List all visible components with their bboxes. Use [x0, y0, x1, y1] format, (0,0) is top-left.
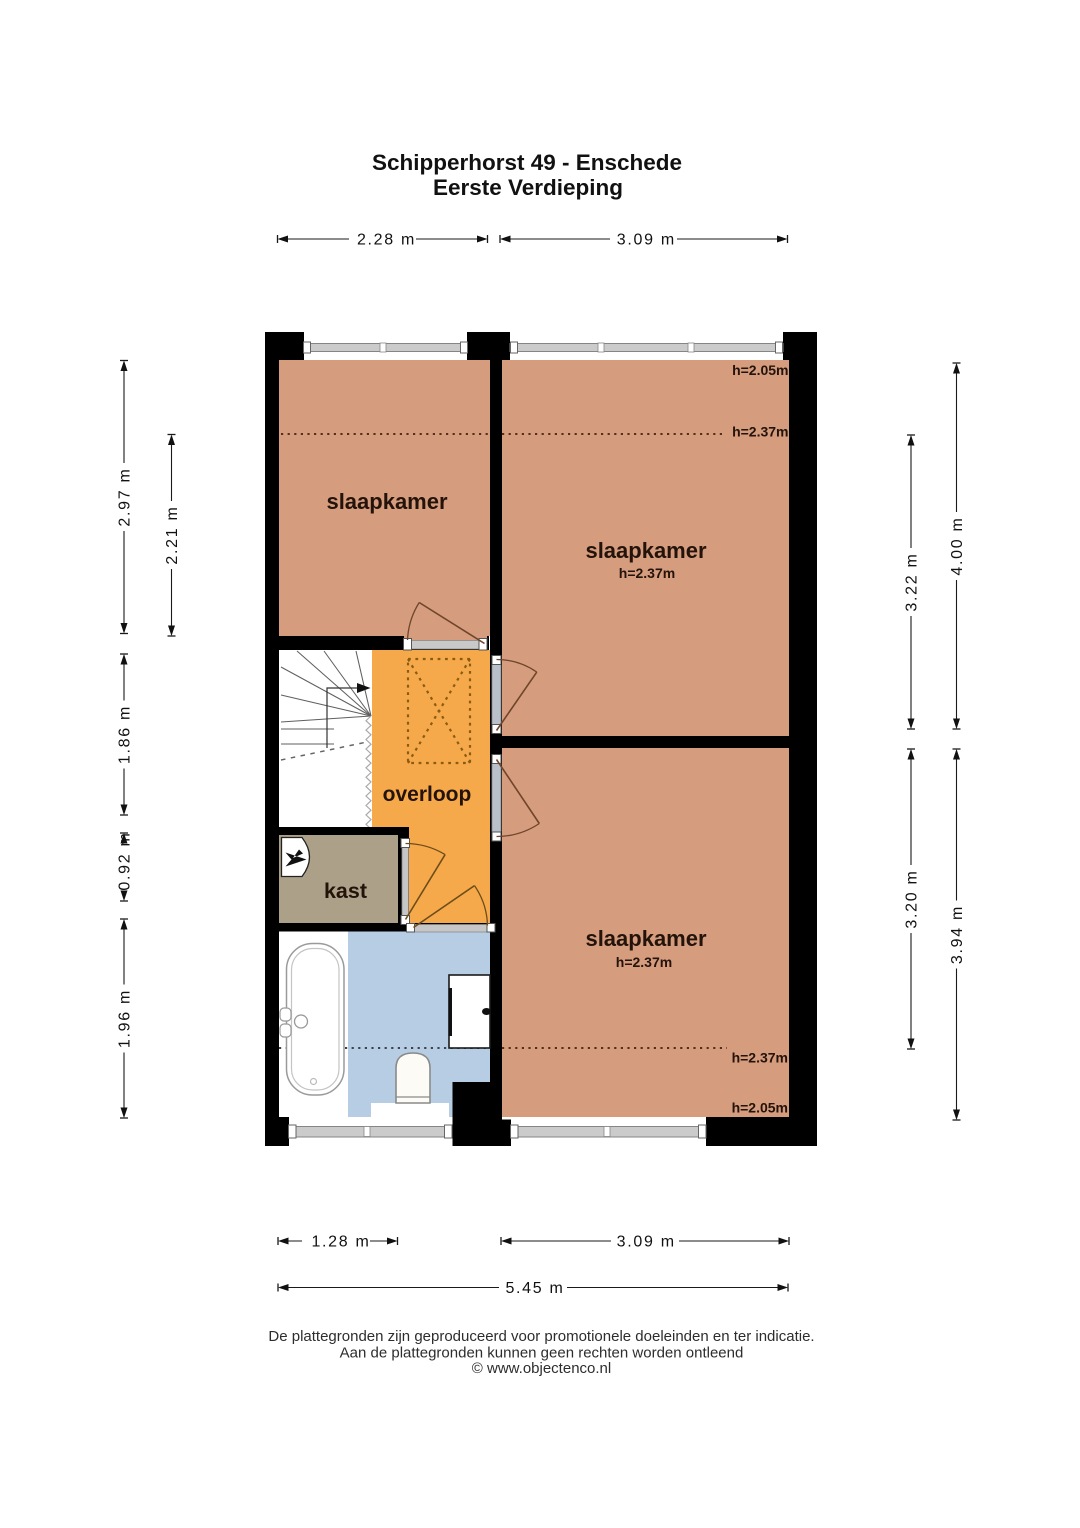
svg-text:2.28 m: 2.28 m	[357, 232, 416, 249]
svg-text:1.96 m: 1.96 m	[117, 989, 134, 1048]
svg-text:1.28 m: 1.28 m	[311, 1234, 370, 1251]
svg-text:overloop: overloop	[383, 783, 472, 806]
svg-text:0.92 m: 0.92 m	[117, 831, 134, 890]
svg-text:© www.objectenco.nl: © www.objectenco.nl	[472, 1360, 611, 1377]
svg-text:Aan de plattegronden kunnen ge: Aan de plattegronden kunnen geen rechten…	[340, 1345, 744, 1362]
svg-text:3.09 m: 3.09 m	[617, 1234, 676, 1251]
svg-text:h=2.37m: h=2.37m	[616, 954, 672, 970]
svg-text:3.20 m: 3.20 m	[904, 869, 921, 928]
svg-text:5.45 m: 5.45 m	[505, 1280, 564, 1297]
svg-text:slaapkamer: slaapkamer	[585, 538, 707, 563]
svg-text:3.09 m: 3.09 m	[617, 232, 676, 249]
svg-text:kast: kast	[324, 879, 367, 903]
svg-text:1.86 m: 1.86 m	[117, 705, 134, 764]
svg-text:De plattegronden zijn geproduc: De plattegronden zijn geproduceerd voor …	[268, 1328, 814, 1345]
svg-text:h=2.37m: h=2.37m	[732, 1050, 788, 1066]
svg-text:3.22 m: 3.22 m	[904, 552, 921, 611]
svg-text:slaapkamer: slaapkamer	[585, 926, 707, 951]
svg-text:2.97 m: 2.97 m	[117, 467, 134, 526]
svg-text:2.21 m: 2.21 m	[164, 505, 181, 564]
svg-text:3.94 m: 3.94 m	[949, 905, 966, 964]
svg-text:h=2.37m: h=2.37m	[732, 424, 788, 440]
svg-text:Eerste Verdieping: Eerste Verdieping	[433, 175, 623, 200]
svg-text:h=2.05m: h=2.05m	[732, 362, 788, 378]
svg-text:h=2.05m: h=2.05m	[732, 1100, 788, 1116]
svg-text:h=2.37m: h=2.37m	[619, 565, 675, 581]
svg-text:4.00 m: 4.00 m	[949, 516, 966, 575]
svg-text:Schipperhorst 49 - Enschede: Schipperhorst 49 - Enschede	[372, 150, 682, 175]
svg-text:slaapkamer: slaapkamer	[326, 489, 448, 514]
